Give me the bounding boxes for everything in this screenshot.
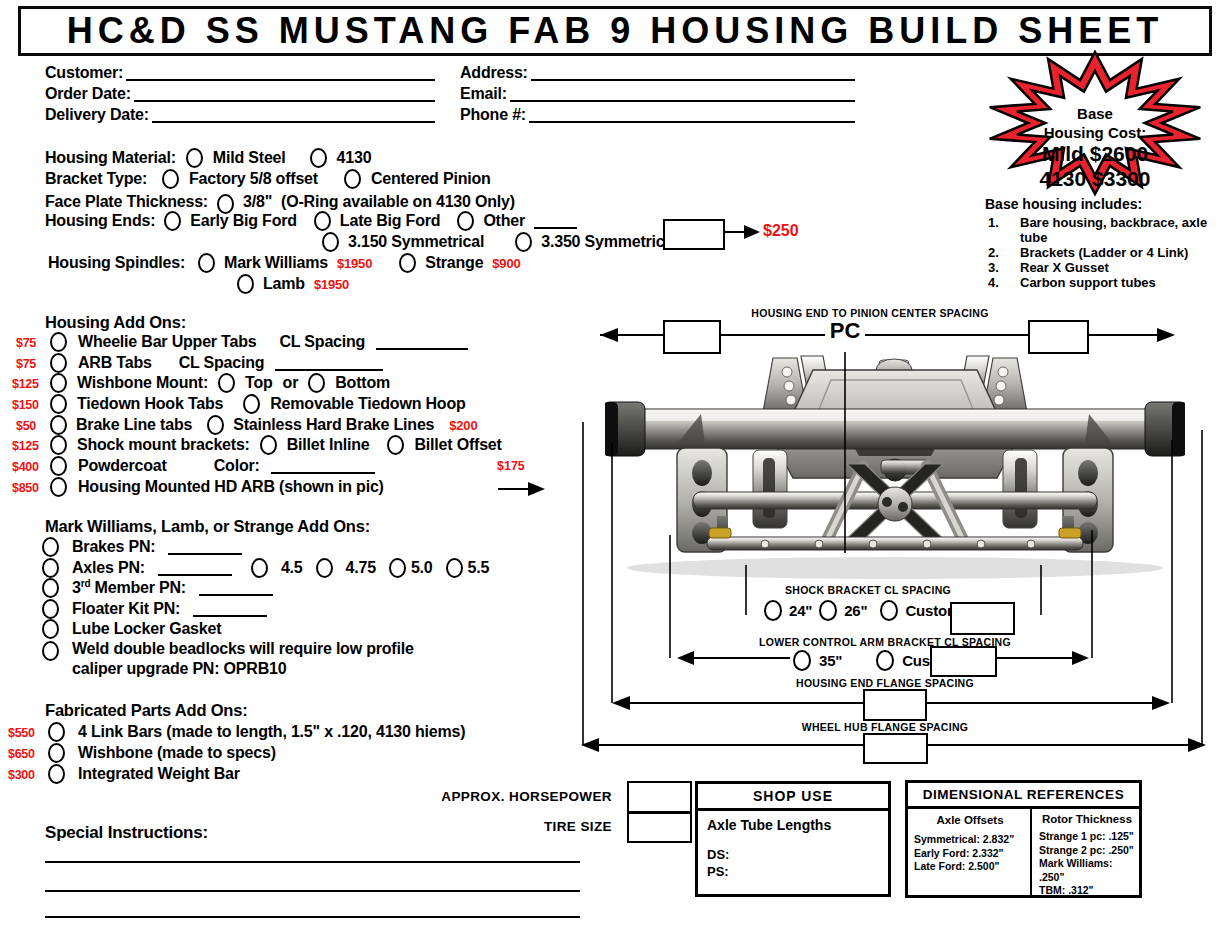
third-member-pn-input[interactable]: [199, 580, 273, 596]
housing-mounted-arb-label: Housing Mounted HD ARB (shown in pic): [78, 478, 384, 496]
radio-wishbone-mount[interactable]: [50, 373, 67, 393]
radio-ratio-45[interactable]: [251, 558, 268, 578]
radio-weld-beadlocks[interactable]: [42, 641, 59, 661]
factory-offset-label: Factory 5/8 offset: [189, 170, 318, 188]
mark-williams-label: Mark Williams: [224, 254, 328, 272]
pc-right-input-box[interactable]: [1028, 320, 1089, 354]
wheel-hub-flange-input-box[interactable]: [863, 733, 928, 764]
shock-24-label: 24": [789, 602, 812, 619]
radio-billet-offset[interactable]: [387, 435, 404, 455]
wheel-hub-flange-label: WHEEL HUB FLANGE SPACING: [730, 721, 1040, 733]
axle-offsets-item: Late Ford: 2.500": [914, 860, 1026, 874]
housing-material-label: Housing Material:: [45, 149, 176, 167]
fab-heading: Fabricated Parts Add Ons:: [45, 701, 248, 720]
third-member-ordinal: rd: [81, 578, 91, 589]
radio-weight-bar[interactable]: [48, 764, 65, 784]
rotor-thickness-column: Rotor Thickness Strange 1 pc: .125" Stra…: [1032, 809, 1139, 895]
addon-row-tiedown: Tiedown Hook Tabs Removable Tiedown Hoop: [50, 394, 466, 414]
tiedown-hook-tabs-label: Tiedown Hook Tabs: [77, 395, 223, 413]
customer-input[interactable]: [126, 65, 435, 81]
shock-mount-brackets-label: Shock mount brackets:: [77, 436, 250, 454]
radio-housing-mounted-arb[interactable]: [50, 477, 67, 497]
addon-price: $150: [12, 398, 39, 412]
addon-row-powdercoat: Powdercoat Color:: [50, 456, 375, 476]
radio-removable-tiedown-hoop[interactable]: [243, 394, 260, 414]
arb-cl-spacing-input[interactable]: [275, 355, 383, 371]
radio-powdercoat[interactable]: [50, 456, 67, 476]
radio-wishbone-bottom[interactable]: [308, 373, 325, 393]
order-date-input[interactable]: [134, 86, 435, 102]
order-date-row: Order Date:: [45, 85, 435, 103]
pc-centerline-label: PC: [810, 318, 880, 344]
radio-arb-tabs[interactable]: [50, 353, 67, 373]
radio-early-big-ford[interactable]: [164, 211, 181, 231]
wishbone-bottom-label: Bottom: [335, 374, 390, 392]
cl-spacing-label: CL Spacing: [279, 333, 365, 351]
radio-wishbone-top[interactable]: [218, 373, 235, 393]
early-big-ford-label: Early Big Ford: [190, 212, 297, 230]
special-instructions-line2[interactable]: [45, 890, 580, 892]
customer-row: Customer:: [45, 64, 435, 82]
fab-price: $650: [8, 747, 35, 761]
fab-price: $550: [8, 726, 35, 740]
addon-price: $50: [16, 419, 36, 433]
bracket-type-row: Bracket Type: Factory 5/8 offset Centere…: [45, 169, 491, 189]
stainless-brake-lines-label: Stainless Hard Brake Lines: [233, 416, 434, 434]
mild-steel-label: Mild Steel: [213, 149, 286, 167]
phone-label: Phone #:: [460, 106, 526, 124]
shock-26-label: 26": [844, 602, 867, 619]
special-instructions-label: Special Instructions:: [45, 823, 208, 843]
lca-spacing-label: LOWER CONTROL ARM BRACKET CL SPACING: [720, 636, 1050, 648]
star-line3: Mild $2600: [985, 142, 1205, 166]
rotor-thickness-item: Strange 1 pc: .125": [1039, 830, 1135, 844]
housing-material-row: Housing Material: Mild Steel 4130: [45, 148, 371, 168]
lamb-label: Lamb: [263, 275, 305, 293]
tire-size-input-box[interactable]: [627, 812, 692, 843]
fab-row-weight-bar: Integrated Weight Bar: [48, 764, 240, 784]
brakes-pn-input[interactable]: [168, 539, 242, 555]
floater-kit-pn-input[interactable]: [193, 601, 267, 617]
radio-fab-wishbone[interactable]: [48, 743, 65, 763]
addon-price: $400: [12, 460, 39, 474]
radio-centered-pinion[interactable]: [344, 169, 361, 189]
powdercoat-label: Powdercoat: [78, 457, 167, 475]
radio-shock-26[interactable]: [819, 600, 837, 621]
brake-line-tabs-label: Brake Line tabs: [76, 416, 192, 434]
radio-shock-mount-brackets[interactable]: [50, 435, 67, 455]
addon-row-arb-tabs: ARB Tabs CL Spacing: [50, 353, 383, 373]
radio-ratio-475[interactable]: [316, 558, 333, 578]
email-input[interactable]: [510, 86, 855, 102]
radio-ratio-50[interactable]: [389, 558, 406, 578]
housing-spindles-row: Housing Spindles: Mark Williams $1950 St…: [48, 253, 520, 273]
axle-offsets-heading: Axle Offsets: [914, 814, 1026, 826]
cl-spacing-label: CL Spacing: [179, 354, 265, 372]
special-instructions-line3[interactable]: [45, 916, 580, 918]
radio-wheelie-bar-tabs[interactable]: [50, 332, 67, 352]
floater-kit-row: Floater Kit PN:: [42, 599, 267, 619]
address-label: Address:: [460, 64, 528, 82]
housing-end-flange-input-box[interactable]: [863, 689, 927, 721]
title-box: HC&D SS MUSTANG FAB 9 HOUSING BUILD SHEE…: [18, 6, 1212, 56]
shock-custom-input-box[interactable]: [950, 602, 1015, 635]
shock-spacing-label: SHOCK BRACKET CL SPACING: [718, 584, 1018, 596]
brakes-pn-row: Brakes PN:: [42, 537, 242, 557]
addon-price: $75: [16, 357, 36, 371]
radio-shock-24[interactable]: [764, 600, 782, 621]
powdercoat-color-input[interactable]: [271, 458, 375, 474]
axles-pn-label: Axles PN:: [72, 559, 145, 577]
billet-inline-label: Billet Inline: [287, 436, 370, 454]
pc-left-input-box[interactable]: [663, 320, 721, 354]
axle-offsets-column: Axle Offsets Symmetrical: 2.832" Early F…: [908, 809, 1032, 895]
addon-price: $125: [12, 439, 39, 453]
fab-wishbone-label: Wishbone (made to specs): [78, 744, 276, 762]
late-big-ford-label: Late Big Ford: [340, 212, 441, 230]
email-label: Email:: [460, 85, 507, 103]
customer-label: Customer:: [45, 64, 123, 82]
star-line4: 4130 $3300: [985, 167, 1205, 191]
addon-row-hd-arb: Housing Mounted HD ARB (shown in pic): [50, 477, 384, 497]
radio-brakes[interactable]: [42, 537, 59, 557]
radio-brake-line-tabs[interactable]: [50, 415, 67, 435]
third-member-row: 3rd Member PN:: [42, 578, 273, 598]
third-member-text: Member PN:: [90, 580, 186, 597]
4130-label: 4130: [337, 149, 372, 167]
build-sheet: HC&D SS MUSTANG FAB 9 HOUSING BUILD SHEE…: [0, 0, 1225, 927]
radio-lube-locker[interactable]: [42, 619, 59, 639]
star-line2: Housing Cost:: [985, 124, 1205, 141]
weld-beadlocks-line1: Weld double beadlocks will require low p…: [72, 640, 414, 658]
ds-label[interactable]: DS:: [707, 847, 879, 862]
tire-size-label: TIRE SIZE: [430, 819, 612, 834]
ratio-475-label: 4.75: [346, 559, 376, 577]
radio-lca-custom[interactable]: [876, 650, 894, 671]
shock-spacing-row: 24" 26" Custom: [764, 600, 960, 621]
radio-third-member[interactable]: [42, 578, 59, 598]
delivery-date-label: Delivery Date:: [45, 106, 149, 124]
weld-beadlocks-row: Weld double beadlocks will require low p…: [42, 640, 414, 678]
shop-use-panel: SHOP USE Axle Tube Lengths DS: PS:: [695, 781, 891, 897]
or-label: or: [283, 374, 299, 392]
addon-price: $125: [12, 377, 39, 391]
axles-pn-row: Axles PN: 4.5 4.75 5.0 5.5: [42, 558, 489, 578]
wheelie-bar-label: Wheelie Bar Upper Tabs: [78, 333, 256, 351]
axle-tube-lengths-label: Axle Tube Lengths: [707, 817, 879, 833]
radio-mild-steel[interactable]: [186, 148, 203, 168]
axle-offsets-item: Early Ford: 2.332": [914, 847, 1026, 861]
removable-tiedown-hoop-label: Removable Tiedown Hoop: [270, 395, 465, 413]
phone-input[interactable]: [529, 107, 855, 123]
ps-label[interactable]: PS:: [707, 864, 879, 879]
special-instructions-line1[interactable]: [45, 861, 580, 863]
fab-row-wishbone: Wishbone (made to specs): [48, 743, 276, 763]
delivery-date-row: Delivery Date:: [45, 106, 435, 124]
radio-factory-offset[interactable]: [162, 169, 179, 189]
rotor-thickness-item: Mark Williams: .250": [1039, 857, 1135, 884]
lube-locker-row: Lube Locker Gasket: [42, 619, 221, 639]
addon-row-shock-mount: Shock mount brackets: Billet Inline Bill…: [50, 435, 502, 455]
radio-lamb[interactable]: [237, 274, 254, 294]
mark-williams-price: $1950: [337, 256, 372, 271]
weight-bar-label: Integrated Weight Bar: [78, 765, 240, 783]
radio-mark-williams[interactable]: [198, 253, 215, 273]
addons-heading: Housing Add Ons:: [45, 313, 186, 332]
mw-heading: Mark Williams, Lamb, or Strange Add Ons:: [45, 517, 370, 536]
radio-4130[interactable]: [310, 148, 327, 168]
radio-lca-35[interactable]: [793, 650, 811, 671]
lamb-row: Lamb $1950: [237, 274, 349, 294]
fab-row-4link: 4 Link Bars (made to length, 1.5" x .120…: [48, 722, 465, 742]
other-end-cost-box[interactable]: [663, 219, 725, 250]
axle-offsets-item: Symmetrical: 2.832": [914, 833, 1026, 847]
ratio-45-label: 4.5: [281, 559, 303, 577]
radio-billet-inline[interactable]: [260, 435, 277, 455]
radio-3150-symmetrical[interactable]: [322, 232, 339, 252]
order-date-label: Order Date:: [45, 85, 131, 103]
ratio-50-label: 5.0: [411, 559, 433, 577]
lca-custom-input-box[interactable]: [930, 646, 997, 677]
address-input[interactable]: [531, 65, 855, 81]
bracket-type-label: Bracket Type:: [45, 170, 147, 188]
wishbone-top-label: Top: [245, 374, 273, 392]
rotor-thickness-item: TBM: .312": [1039, 884, 1135, 898]
addon-price: $75: [16, 336, 36, 350]
rotor-thickness-heading: Rotor Thickness: [1039, 813, 1135, 825]
floater-kit-label: Floater Kit PN:: [72, 600, 180, 618]
radio-late-big-ford[interactable]: [314, 211, 331, 231]
face-plate-label: Face Plate Thickness:: [45, 193, 208, 211]
dimensional-references-title: DIMENSIONAL REFERENCES: [908, 783, 1139, 809]
radio-axles[interactable]: [42, 558, 59, 578]
rotor-thickness-item: Strange 2 pc: .250": [1039, 844, 1135, 858]
phone-row: Phone #:: [460, 106, 855, 124]
radio-stainless-brake-lines[interactable]: [207, 415, 224, 435]
horsepower-label: APPROX. HORSEPOWER: [430, 789, 612, 804]
housing-ends-label: Housing Ends:: [45, 212, 155, 230]
horsepower-input-box[interactable]: [627, 781, 692, 813]
wishbone-mount-label: Wishbone Mount:: [77, 374, 208, 392]
face-plate-size: 3/8": [243, 193, 272, 211]
third-member-label: 3rd Member PN:: [72, 578, 186, 597]
shop-use-title: SHOP USE: [698, 784, 888, 811]
arb-tabs-label: ARB Tabs: [78, 354, 152, 372]
brakes-pn-label: Brakes PN:: [72, 538, 155, 556]
page-title: HC&D SS MUSTANG FAB 9 HOUSING BUILD SHEE…: [67, 10, 1163, 52]
fab-price: $300: [8, 768, 35, 782]
radio-shock-custom[interactable]: [880, 600, 898, 621]
address-row: Address:: [460, 64, 855, 82]
lamb-price: $1950: [314, 277, 349, 292]
radio-4-link-bars[interactable]: [48, 722, 65, 742]
lube-locker-label: Lube Locker Gasket: [72, 620, 221, 638]
third-member-number: 3: [72, 580, 81, 597]
wheelie-cl-spacing-input[interactable]: [376, 334, 468, 350]
color-label: Color:: [214, 457, 260, 475]
radio-floater-kit[interactable]: [42, 599, 59, 619]
centered-pinion-label: Centered Pinion: [371, 170, 491, 188]
delivery-date-input[interactable]: [152, 107, 435, 123]
dimensional-references-panel: DIMENSIONAL REFERENCES Axle Offsets Symm…: [905, 780, 1142, 898]
radio-tiedown-hook-tabs[interactable]: [50, 394, 67, 414]
radio-strange[interactable]: [399, 253, 416, 273]
addon-row-wishbone-mount: Wishbone Mount: Top or Bottom: [50, 373, 390, 393]
4-link-bars-label: 4 Link Bars (made to length, 1.5" x .120…: [78, 723, 465, 741]
addon-row-brake-lines: Brake Line tabs Stainless Hard Brake Lin…: [50, 415, 477, 435]
axles-pn-input[interactable]: [158, 560, 232, 576]
addon-price: $850: [12, 481, 39, 495]
addon-row-wheelie-bar: Wheelie Bar Upper Tabs CL Spacing: [50, 332, 468, 352]
lca-35-label: 35": [819, 652, 842, 669]
star-line1: Base: [985, 105, 1205, 122]
email-row: Email:: [460, 85, 855, 103]
housing-end-flange-label: HOUSING END FLANGE SPACING: [730, 677, 1040, 689]
weld-beadlocks-line2: caliper upgrade PN: OPRB10: [72, 660, 414, 678]
housing-spindles-label: Housing Spindles:: [48, 254, 185, 272]
